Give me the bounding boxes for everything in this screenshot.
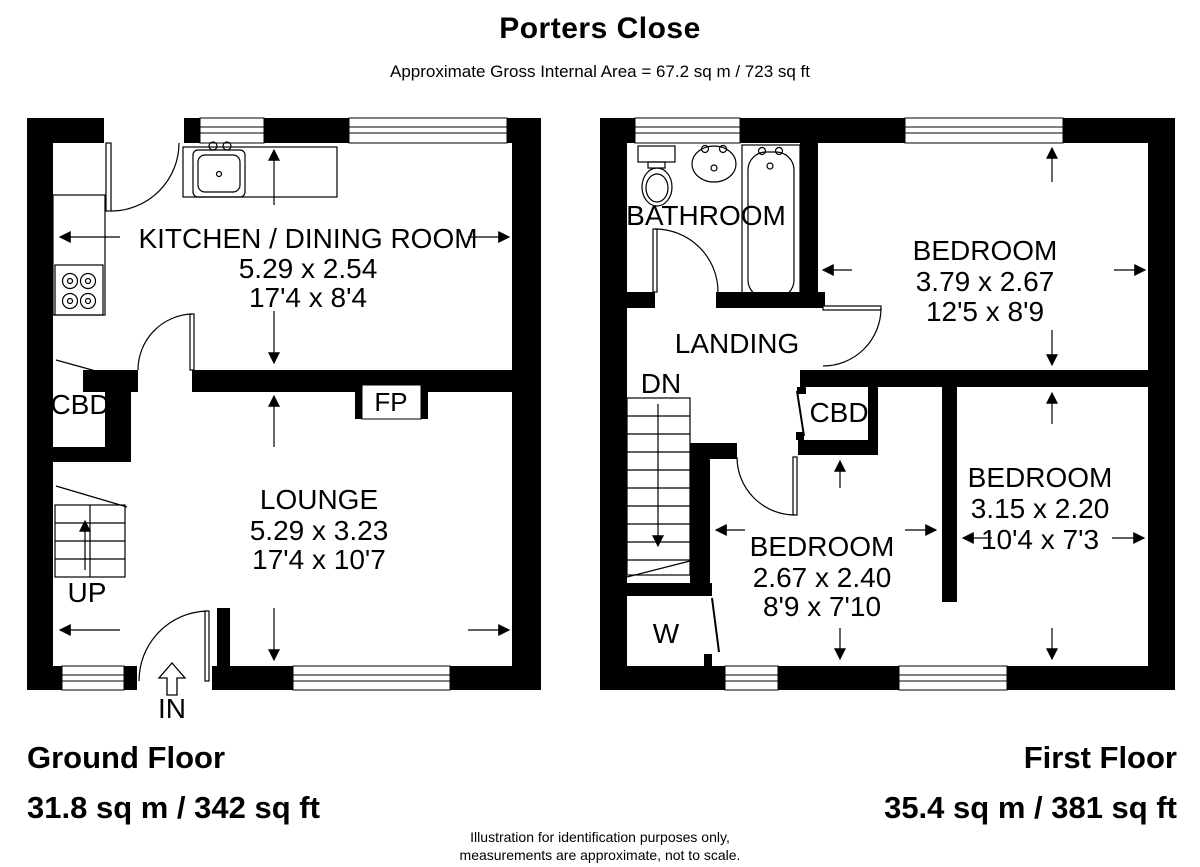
ground-floor-area: 31.8 sq m / 342 sq ft [27, 783, 320, 833]
wall-segment [778, 666, 899, 690]
ground-floor-name: Ground Floor [27, 733, 320, 783]
wall-segment [1063, 118, 1175, 143]
wall-segment [450, 666, 541, 690]
label-cbd: CBD [50, 389, 109, 420]
door-back [106, 143, 179, 211]
room-label-landing: LANDING [675, 328, 799, 359]
room-dim-metric: 3.79 x 2.67 [916, 266, 1055, 297]
window [635, 118, 740, 143]
label-dn: DN [641, 368, 681, 399]
room-dim-imperial: 10'4 x 7'3 [981, 524, 1099, 555]
wall-segment [1148, 143, 1175, 666]
disclaimer: Illustration for identification purposes… [0, 828, 1200, 864]
window [899, 666, 1007, 690]
wall-segment [27, 143, 53, 666]
door-cbd [796, 387, 806, 440]
wall-segment [184, 118, 200, 143]
wall-segment [800, 143, 818, 308]
room-dim-imperial: 17'4 x 8'4 [249, 282, 367, 313]
window [349, 118, 507, 143]
wall-segment [600, 666, 725, 690]
disclaimer-line1: Illustration for identification purposes… [0, 828, 1200, 846]
first-floor-area: 35.4 sq m / 381 sq ft [884, 783, 1177, 833]
fireplace-stub [355, 385, 362, 419]
ground-floor-plan: KITCHEN / DINING ROOM 5.29 x 2.54 17'4 x… [27, 118, 541, 724]
room-dim-metric: 5.29 x 2.54 [239, 253, 378, 284]
wall-segment [800, 370, 1148, 387]
stairs-down-icon [627, 398, 690, 577]
room-dim-imperial: 12'5 x 8'9 [926, 296, 1044, 327]
ground-floor-labels: KITCHEN / DINING ROOM 5.29 x 2.54 17'4 x… [50, 223, 477, 724]
wall-segment [716, 292, 825, 308]
wall-segment [627, 292, 655, 308]
wall-segment [264, 118, 349, 143]
ground-floor-caption: Ground Floor 31.8 sq m / 342 sq ft [27, 733, 320, 833]
wall-segment [124, 666, 137, 690]
label-in: IN [158, 693, 186, 724]
wall-segment [212, 666, 293, 690]
room-label-bedroom2: BEDROOM [968, 462, 1113, 493]
wall-segment [704, 654, 712, 666]
wall-segment [27, 118, 104, 143]
wall-segment [690, 443, 737, 459]
first-floor-plan: BATHROOM BEDROOM 3.79 x 2.67 12'5 x 8'9 … [600, 118, 1175, 690]
floorplan-page: Porters Close Approximate Gross Internal… [0, 0, 1200, 867]
door-bathroom [653, 229, 718, 292]
wall-segment [27, 447, 131, 462]
wall-segment [192, 370, 512, 392]
wall-segment [798, 440, 878, 455]
wall-segment [507, 118, 541, 143]
window [200, 118, 264, 143]
window [725, 666, 778, 690]
wall-segment [690, 443, 710, 585]
label-up: UP [68, 577, 107, 608]
wall-segment [217, 608, 230, 666]
room-label-bathroom: BATHROOM [626, 200, 786, 231]
door-wardrobe [712, 598, 719, 652]
room-dim-metric: 3.15 x 2.20 [971, 493, 1110, 524]
wall-segment [868, 387, 878, 443]
room-dim-imperial: 8'9 x 7'10 [763, 591, 881, 622]
wall-segment [512, 143, 541, 666]
window [293, 666, 450, 690]
door-bedroom3 [737, 457, 797, 515]
label-fp: FP [374, 387, 407, 417]
wall-segment [600, 118, 635, 143]
fireplace-stub [421, 385, 428, 419]
wall-segment [600, 583, 712, 596]
wall-segment [942, 387, 957, 602]
window [62, 666, 124, 690]
wall-segment [1007, 666, 1175, 690]
hob-icon [53, 195, 105, 315]
wall-segment [740, 118, 905, 143]
room-label-kitchen: KITCHEN / DINING ROOM [138, 223, 477, 254]
door-kitchen [138, 314, 194, 370]
room-dim-imperial: 17'4 x 10'7 [252, 544, 386, 575]
entrance-arrow-icon [159, 663, 185, 695]
first-floor-caption: First Floor 35.4 sq m / 381 sq ft [884, 733, 1177, 833]
wall-segment [27, 666, 62, 690]
disclaimer-line2: measurements are approximate, not to sca… [0, 846, 1200, 864]
door-bedroom1 [823, 306, 881, 366]
room-dim-metric: 5.29 x 3.23 [250, 515, 389, 546]
room-dim-metric: 2.67 x 2.40 [753, 562, 892, 593]
first-floor-name: First Floor [884, 733, 1177, 783]
label-w: W [653, 618, 680, 649]
room-label-lounge: LOUNGE [260, 484, 378, 515]
window [905, 118, 1063, 143]
label-cbd: CBD [809, 397, 868, 428]
room-label-bedroom3: BEDROOM [750, 531, 895, 562]
kitchen-sink-icon [183, 142, 337, 197]
room-label-bedroom1: BEDROOM [913, 235, 1058, 266]
toilet-icon [638, 146, 675, 206]
basin-icon [692, 146, 736, 183]
